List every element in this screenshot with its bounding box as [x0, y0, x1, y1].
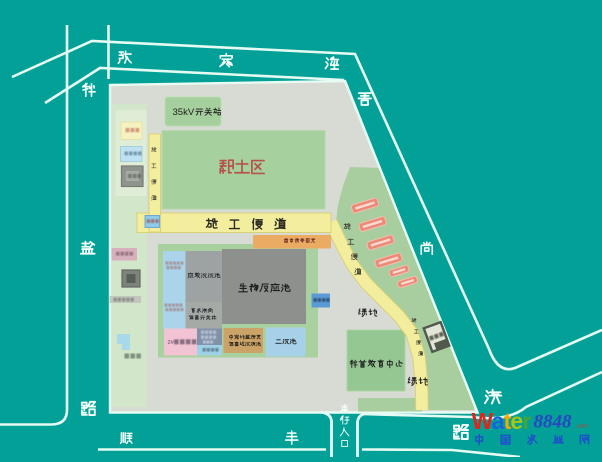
svg-text:2#: 2# [168, 340, 175, 346]
svg-text:8848: 8848 [534, 412, 573, 433]
svg-text:Water: Water [472, 408, 532, 434]
svg-text:.com: .com [576, 424, 588, 430]
svg-text:35kV: 35kV [173, 107, 195, 118]
